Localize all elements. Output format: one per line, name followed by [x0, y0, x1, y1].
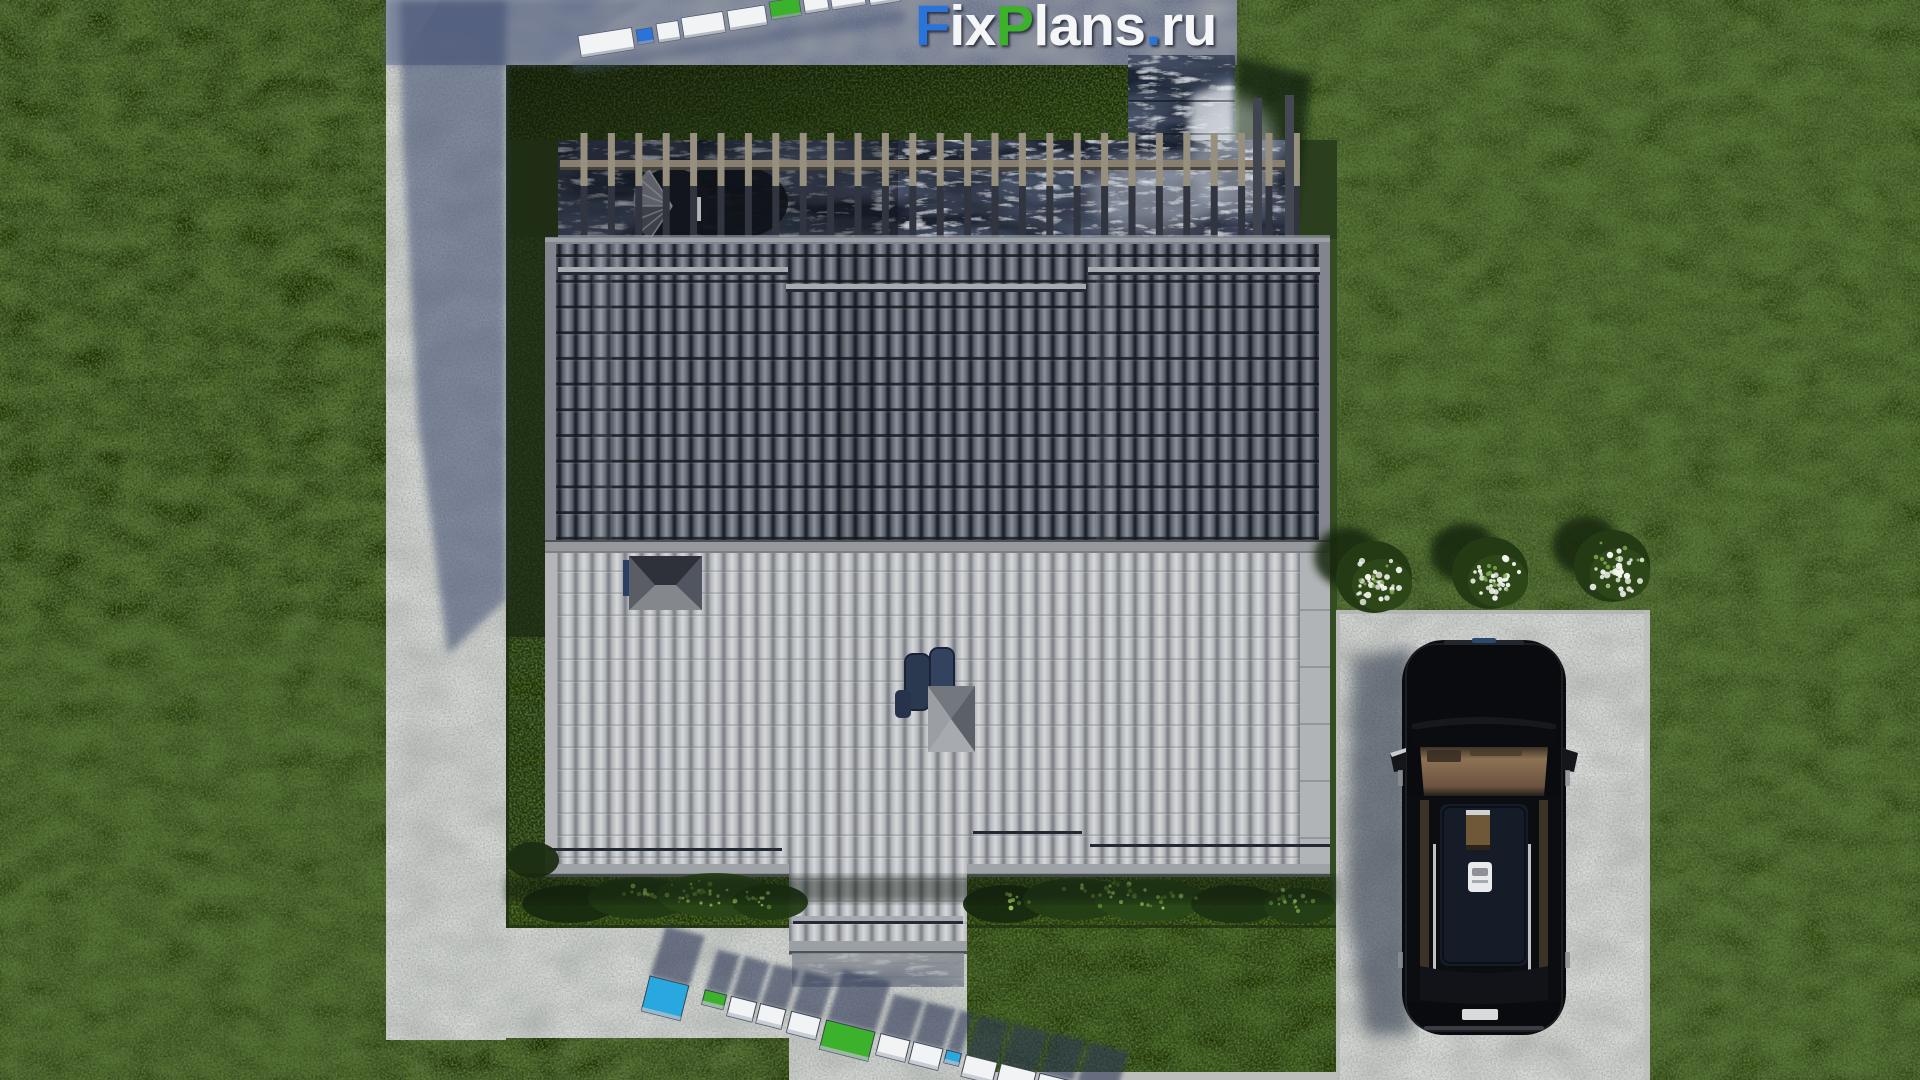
svg-text:FixPlans.ru: FixPlans.ru	[915, 0, 1217, 58]
